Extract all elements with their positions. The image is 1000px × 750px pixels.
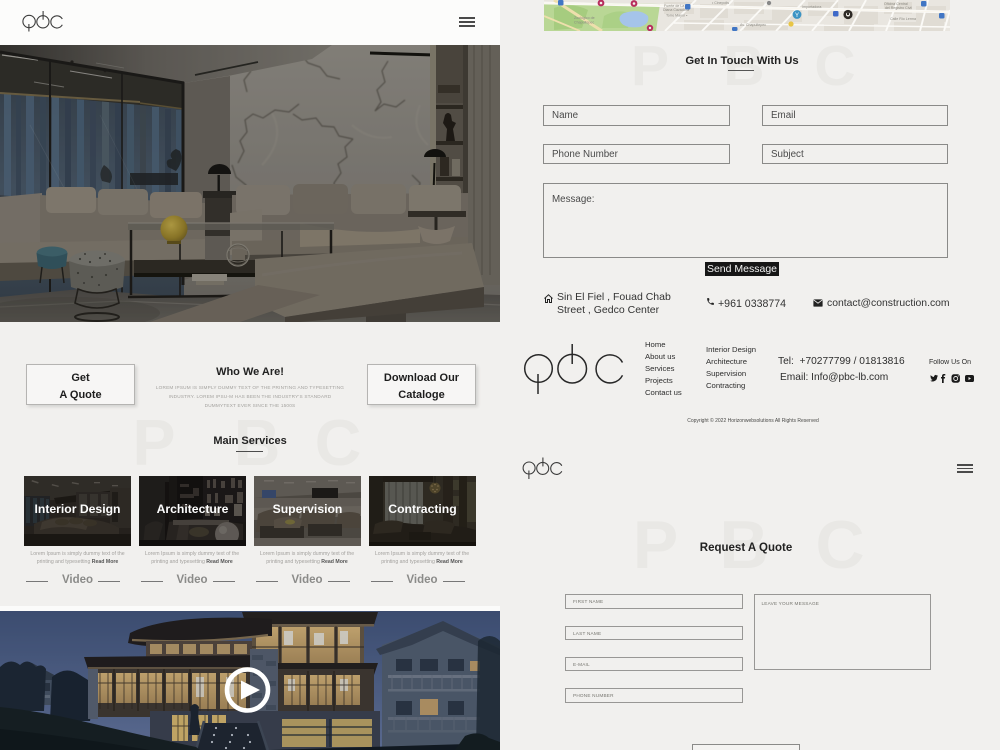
svg-text:• Cinepolis: • Cinepolis	[712, 1, 729, 5]
svg-text:Calle Río Lerma: Calle Río Lerma	[890, 17, 916, 21]
svg-text:del Registro Civil: del Registro Civil	[885, 6, 912, 10]
svg-text:Y: Y	[795, 13, 799, 19]
svg-text:Torre Mayor •: Torre Mayor •	[666, 14, 688, 18]
svg-text:Importadora: Importadora	[802, 5, 821, 9]
svg-text:Zoológico de: Zoológico de	[574, 16, 595, 20]
svg-text:Supervision: Supervision	[272, 502, 342, 516]
svg-text:Chapultepec: Chapultepec	[574, 21, 594, 25]
svg-text:Av. Chapultepec: Av. Chapultepec	[740, 23, 766, 27]
svg-text:Contracting: Contracting	[388, 502, 456, 516]
svg-text:Interior Design: Interior Design	[34, 502, 120, 516]
svg-text:Architecture: Architecture	[156, 502, 228, 516]
